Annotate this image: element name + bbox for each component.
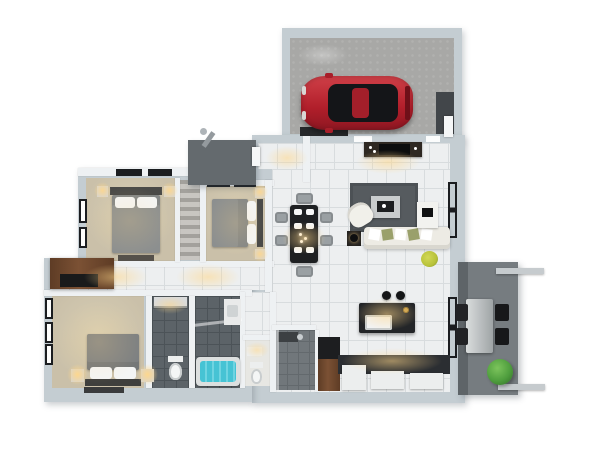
island-sink <box>365 315 392 330</box>
bath2-sink <box>227 305 238 317</box>
car-mirror-right <box>325 128 333 133</box>
wall-bath1-bath2 <box>189 296 195 388</box>
floor-plan-canvas <box>0 0 600 454</box>
master-pillow-2 <box>114 367 136 379</box>
car-mirror-left <box>325 73 333 78</box>
bed2-nightstand-top <box>255 188 265 198</box>
place-setting-1 <box>294 209 302 215</box>
place-setting-5 <box>294 247 302 253</box>
wall-bed1-closet <box>175 178 180 262</box>
desk-monitor <box>422 208 433 217</box>
tray-decor <box>382 204 386 208</box>
kitchen-pendant-2 <box>396 291 405 300</box>
bed1-pillow-1 <box>115 197 135 208</box>
master-rug <box>84 387 124 393</box>
tv-panel <box>379 144 410 155</box>
bath1-toilet-bowl <box>169 363 182 380</box>
patio-railing-bottom <box>498 384 545 390</box>
sofa-pillow-3 <box>394 228 406 240</box>
bed1-headboard <box>110 187 162 195</box>
console-decor-1 <box>369 146 372 149</box>
living-top-window-2 <box>426 136 440 142</box>
car-headlight-1 <box>302 86 306 95</box>
console-decor-2 <box>373 150 376 153</box>
front-door <box>252 147 260 166</box>
bed2-nightstand-bottom <box>255 249 265 259</box>
place-setting-6 <box>306 247 314 253</box>
patio-table <box>466 299 493 353</box>
wall-foyer-living <box>303 135 310 182</box>
bed2-duvet <box>212 199 248 247</box>
master-headboard <box>85 379 141 386</box>
dining-chair-6 <box>296 266 313 277</box>
bedroom1-window-2 <box>79 227 87 248</box>
bath1-toilet-tank <box>168 356 183 362</box>
dining-chair-1 <box>275 212 288 223</box>
bathtub-water <box>200 361 236 382</box>
kitchen-pendant-1 <box>382 291 391 300</box>
master-window-2 <box>45 322 53 343</box>
shower-head <box>297 334 303 340</box>
island-faucet-gold <box>403 307 409 313</box>
bed1-foot-bench <box>118 255 154 261</box>
wardrobe-niche <box>60 274 98 287</box>
pantry-wood-door <box>318 359 340 391</box>
bedroom1-window-1 <box>79 199 87 223</box>
dining-chair-2 <box>275 235 288 246</box>
sofa-pillow-4 <box>407 228 420 241</box>
sofa-pillow-5 <box>420 228 432 240</box>
bed1-nightstand-right <box>164 186 175 197</box>
table-lamp <box>350 234 358 242</box>
patio-plant <box>487 359 513 385</box>
place-setting-4 <box>306 223 314 229</box>
place-setting-3 <box>294 223 302 229</box>
car-taillight <box>405 86 410 120</box>
console-decor-3 <box>414 147 417 150</box>
bed1-pillow-2 <box>137 197 157 208</box>
yellow-plant <box>421 251 438 267</box>
patio-chair-1 <box>495 304 509 321</box>
sofa-pillow-2 <box>381 228 393 240</box>
bed2-headboard <box>257 199 263 247</box>
master-window-3 <box>45 344 53 365</box>
patio-chair-3 <box>456 304 468 321</box>
porch-lamp-head <box>200 128 207 135</box>
bed2-pillow-2 <box>247 224 256 244</box>
stove-unit <box>410 373 443 389</box>
wall-closet-bed2 <box>200 178 206 262</box>
bed1-nightstand-left <box>97 186 108 197</box>
bedroom1-top-window-1 <box>116 169 142 176</box>
wc-toilet-tank <box>250 362 263 368</box>
wall-bed2-corridor <box>265 180 272 292</box>
master-bed-duvet <box>87 334 139 370</box>
wc-toilet-bowl <box>251 369 262 384</box>
place-setting-2 <box>306 209 314 215</box>
patio-chair-2 <box>495 328 509 345</box>
garage-side-door <box>444 116 453 137</box>
car-headlight-2 <box>302 111 306 120</box>
corridor-floor <box>243 292 271 336</box>
master-window-1 <box>45 298 53 319</box>
fridge <box>342 365 366 390</box>
dishwasher <box>371 371 404 389</box>
closet-floor <box>180 180 200 260</box>
entry-porch-slab <box>188 140 256 185</box>
wall-wc-top <box>243 335 271 340</box>
dining-chair-5 <box>296 193 313 204</box>
pantry-opening <box>318 337 340 359</box>
dining-pendant-2 <box>304 237 307 240</box>
wc-basin <box>247 347 262 356</box>
master-nightstand-left <box>71 369 84 382</box>
bath1-vanity <box>154 297 187 308</box>
patio-chair-4 <box>456 328 468 345</box>
sports-car <box>301 76 413 130</box>
dining-pendant-1 <box>299 233 302 236</box>
shower-fixture <box>278 332 298 342</box>
sofa-pillow-1 <box>368 228 381 241</box>
shower-glass-wall <box>276 330 279 390</box>
master-nightstand-right <box>141 369 154 382</box>
car-roof <box>352 88 369 118</box>
dining-chair-3 <box>320 212 333 223</box>
patio-railing-top <box>496 268 544 274</box>
dining-pendant-3 <box>300 240 303 243</box>
bed2-pillow-1 <box>247 201 256 221</box>
dining-chair-4 <box>320 235 333 246</box>
master-pillow-1 <box>90 367 112 379</box>
bedroom1-top-window-2 <box>148 169 172 176</box>
